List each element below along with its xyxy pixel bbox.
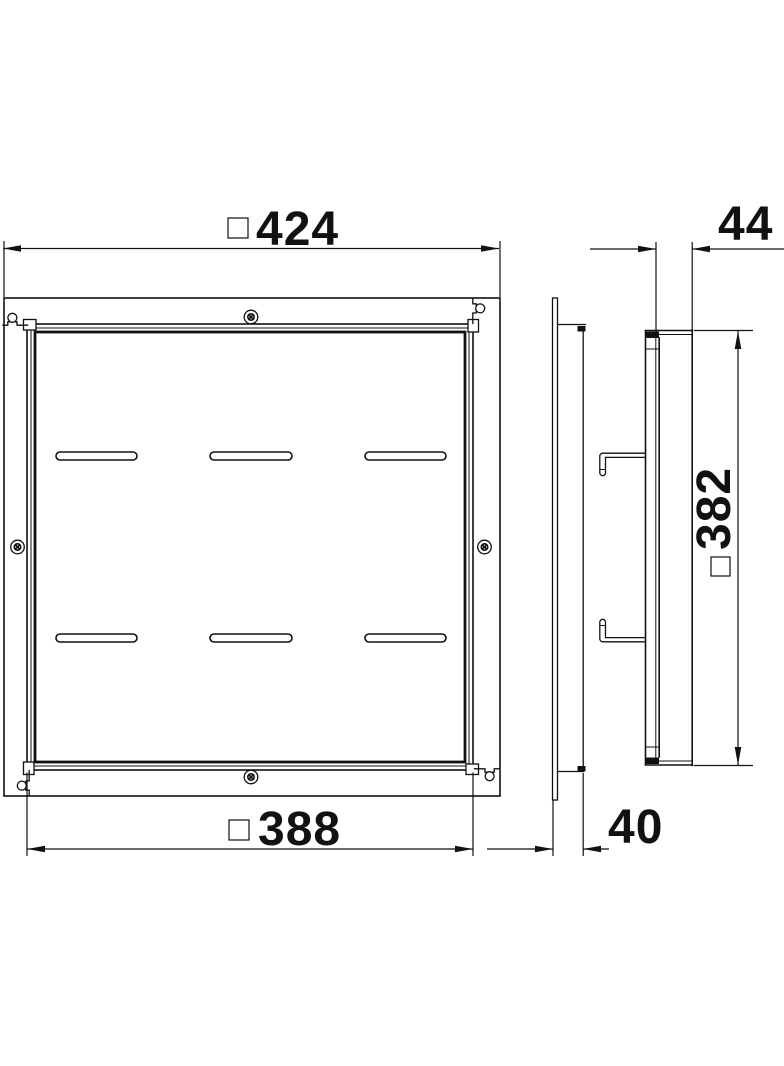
slot <box>365 634 446 642</box>
square-symbol <box>711 557 730 576</box>
technical-drawing: 424 388 44 382 <box>0 0 784 1066</box>
square-symbol <box>229 820 249 840</box>
dimension-side-depth-bottom: 40 <box>487 773 663 856</box>
dimension-label: 388 <box>258 803 341 856</box>
screw-left <box>11 540 25 554</box>
screw-top <box>244 310 258 324</box>
front-view <box>3 298 500 796</box>
dimension-side-inner-height: 382 <box>688 331 753 766</box>
slot <box>365 452 446 460</box>
screw-right <box>478 540 492 554</box>
slots <box>56 452 446 642</box>
slot <box>56 452 137 460</box>
dimension-label: 424 <box>256 203 339 256</box>
screws <box>11 310 492 784</box>
flange-plate-profile <box>553 298 558 800</box>
dimension-label: 40 <box>608 801 663 854</box>
slot <box>56 634 137 642</box>
technical-drawing-page: 424 388 44 382 <box>0 0 784 1066</box>
corner-cutout-top-left <box>3 313 36 330</box>
square-symbol <box>228 218 248 238</box>
slot <box>210 634 292 642</box>
cover-plate-outline <box>4 298 500 796</box>
dimension-front-width: 424 <box>3 203 500 297</box>
dimension-label: 382 <box>688 467 741 550</box>
dimensions: 424 388 44 382 <box>3 198 784 856</box>
mounting-hook-top <box>600 453 646 476</box>
corner-cutout-bottom-right <box>466 764 499 781</box>
cassette-body-profile <box>646 330 693 766</box>
screw-bottom <box>244 770 258 784</box>
dimension-side-depth-top: 44 <box>590 198 784 336</box>
frame-profile <box>558 325 586 772</box>
dimension-label: 44 <box>718 198 773 251</box>
lid-frame <box>27 324 473 770</box>
mounting-hook-bottom <box>600 619 646 642</box>
slot <box>210 452 292 460</box>
corner-cutout-top-right <box>468 299 485 332</box>
side-view <box>553 298 693 800</box>
dimension-front-inner-width: 388 <box>27 773 473 857</box>
corner-cutout-bottom-left <box>17 762 34 795</box>
